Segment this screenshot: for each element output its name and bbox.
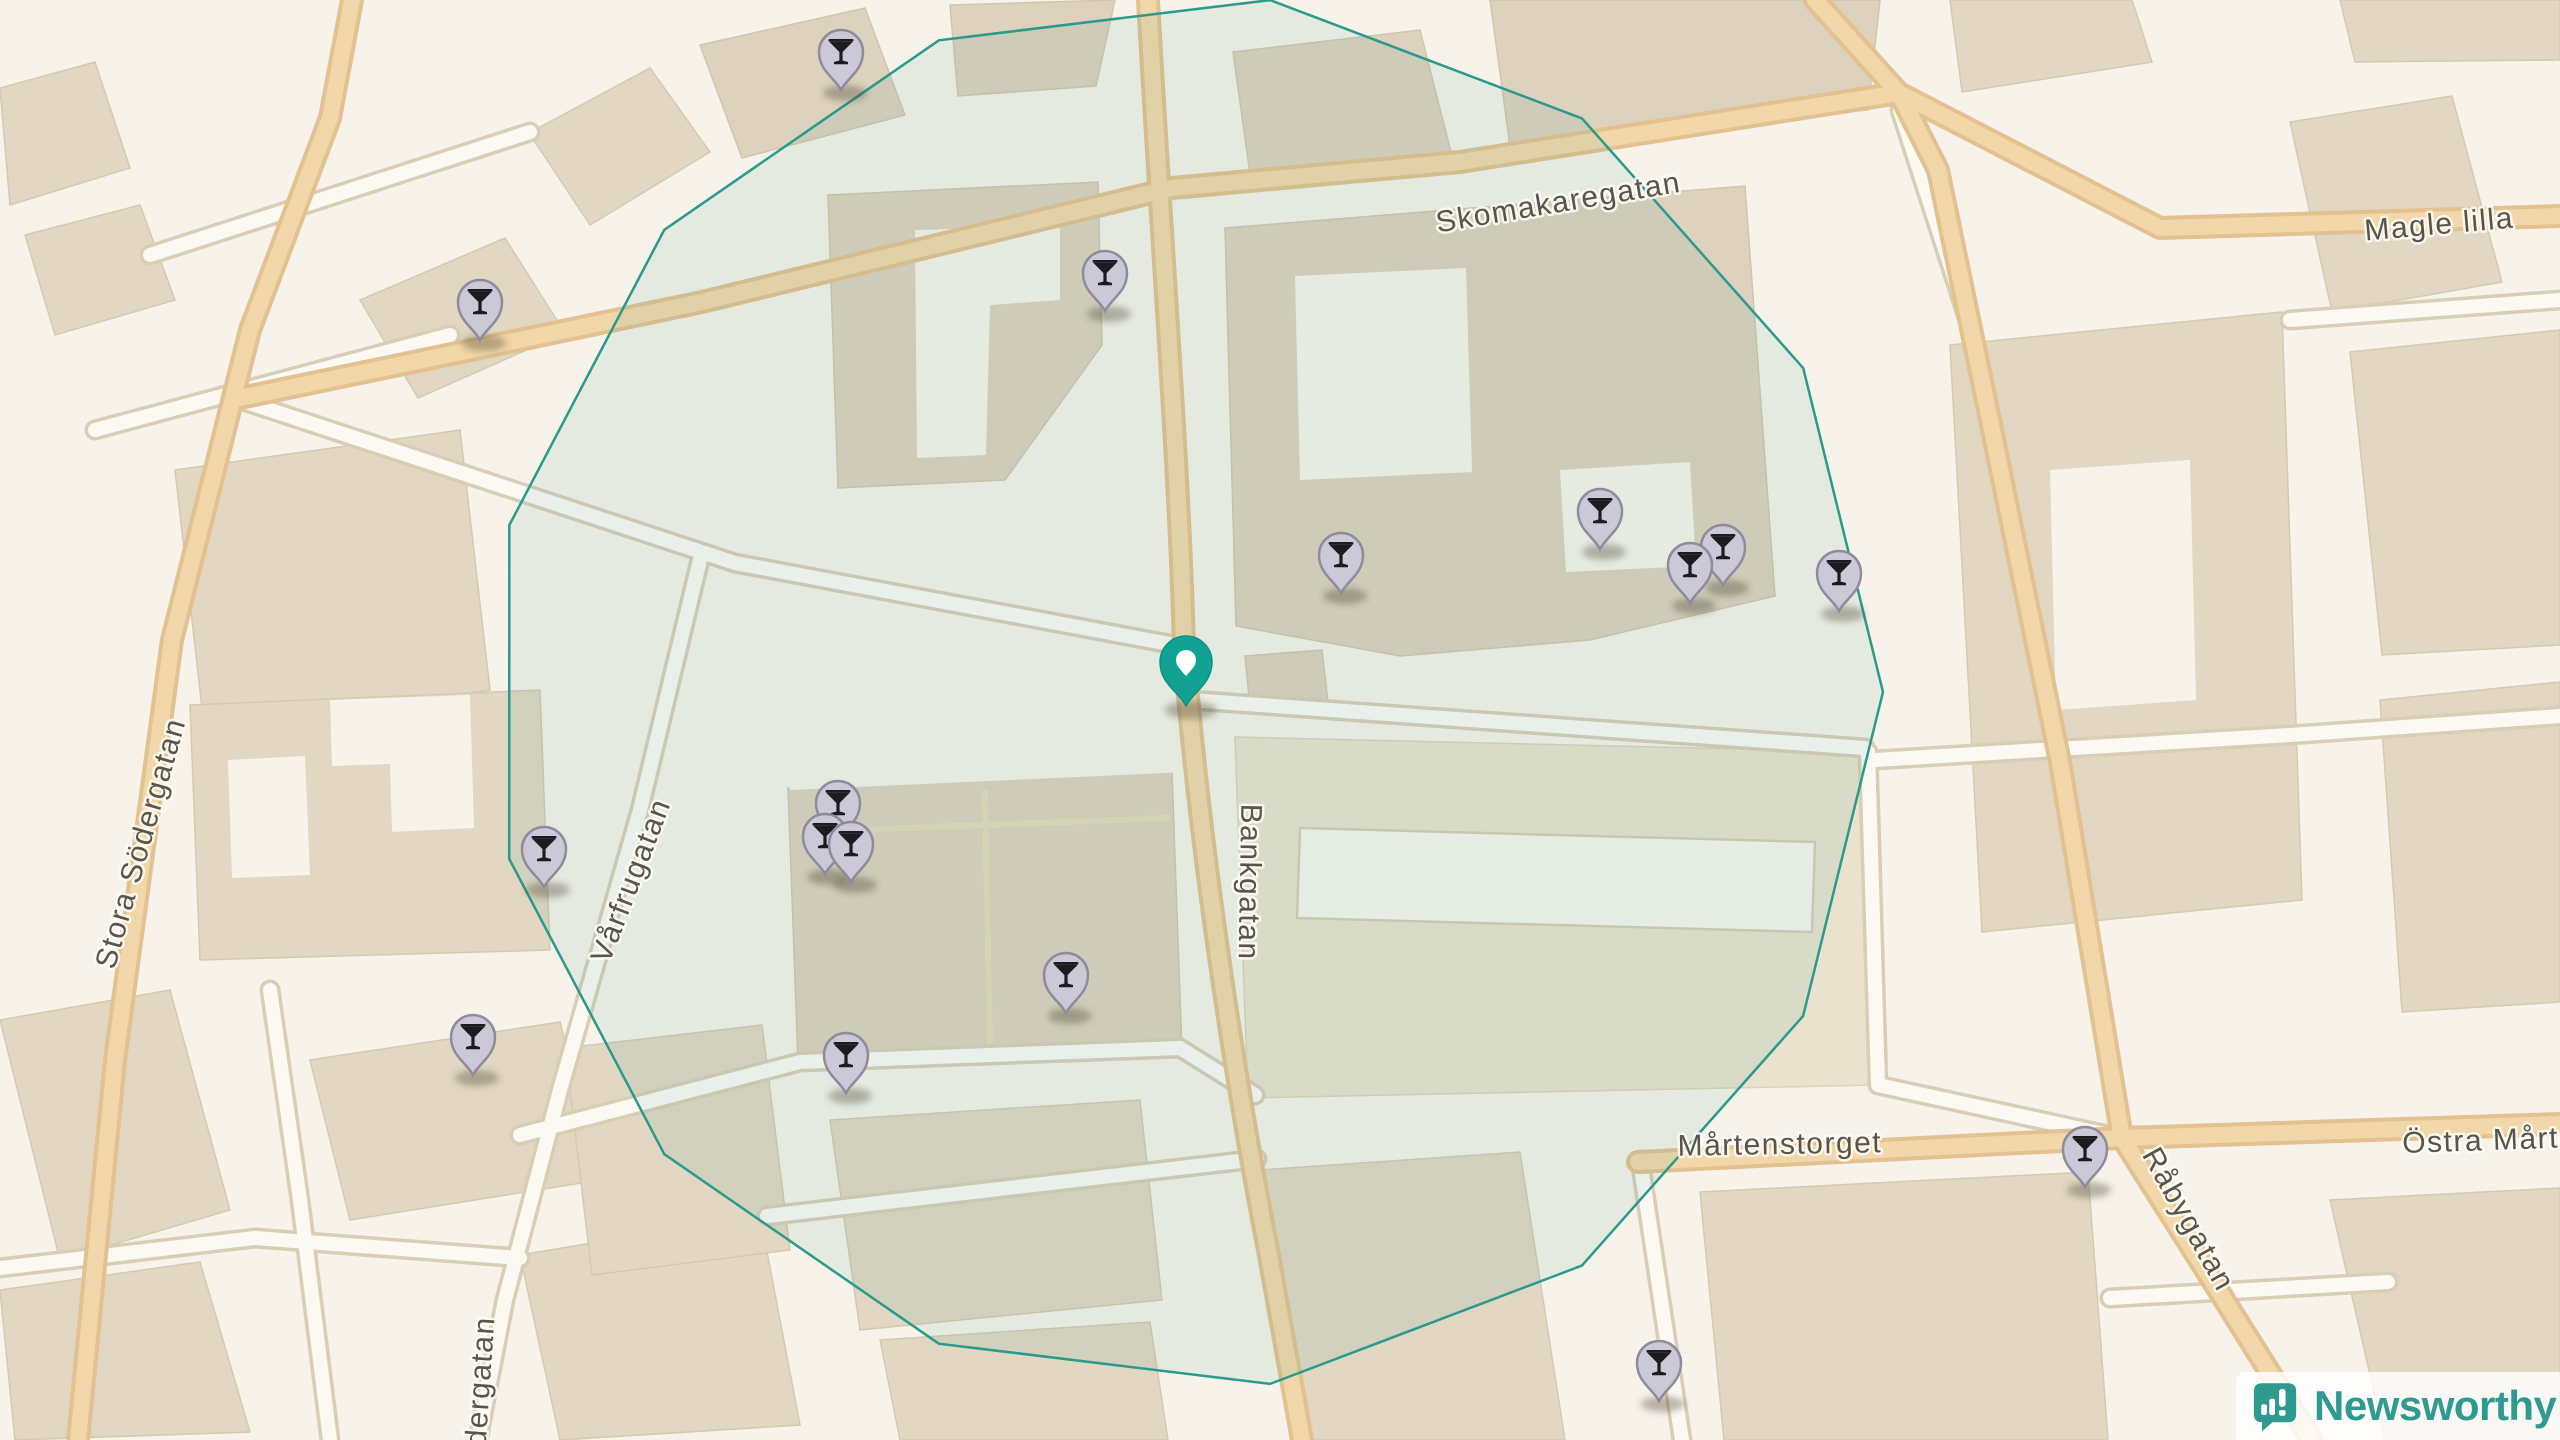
pin-shadow [1048, 1008, 1092, 1024]
center-location-pin[interactable] [1160, 636, 1217, 719]
bar-location-pin[interactable] [829, 822, 877, 893]
pin-shadow [828, 1088, 872, 1104]
bar-location-pin[interactable] [1817, 551, 1865, 622]
pin-shadow [833, 877, 877, 893]
bar-location-pin[interactable] [458, 280, 506, 351]
bar-location-pin[interactable] [2063, 1127, 2111, 1198]
pin-shadow [1087, 306, 1131, 322]
newsworthy-logo-text: Newsworthy [2314, 1382, 2556, 1430]
pin-shadow [1323, 588, 1367, 604]
bar-location-pin[interactable] [1083, 251, 1131, 322]
street-label: Östra Mårte [2402, 1121, 2560, 1160]
street-label: Bankgatan [1232, 803, 1268, 961]
pin-shadow [1641, 1396, 1685, 1412]
bar-location-pin[interactable] [824, 1033, 872, 1104]
pin-shadow [2067, 1182, 2111, 1198]
bar-location-pin[interactable] [1044, 953, 1092, 1024]
bar-location-pin[interactable] [1319, 533, 1367, 604]
pin-shadow [1582, 544, 1626, 560]
bar-location-pin[interactable] [451, 1015, 499, 1086]
newsworthy-logo-icon [2249, 1380, 2301, 1432]
pin-shadow [526, 882, 570, 898]
bar-location-pin[interactable] [1668, 543, 1716, 614]
pin-shadow [455, 1070, 499, 1086]
bar-location-pin[interactable] [1637, 1341, 1685, 1412]
map-view: SkomakaregatanMagle lillaStora Södergata… [0, 0, 2560, 1440]
pin-shadow [823, 85, 867, 101]
newsworthy-attribution[interactable]: Newsworthy [2236, 1372, 2560, 1440]
bar-location-pin[interactable] [522, 827, 570, 898]
bar-location-pin[interactable] [1578, 489, 1626, 560]
pin-shadow [1165, 701, 1217, 719]
pin-shadow [1705, 580, 1749, 596]
pin-shadow [1672, 598, 1716, 614]
street-label: Mårtenstorget [1677, 1126, 1882, 1163]
bar-location-pin[interactable] [819, 30, 867, 101]
map-canvas[interactable]: SkomakaregatanMagle lillaStora Södergata… [0, 0, 2560, 1440]
pin-shadow [462, 335, 506, 351]
pin-shadow [1821, 606, 1865, 622]
